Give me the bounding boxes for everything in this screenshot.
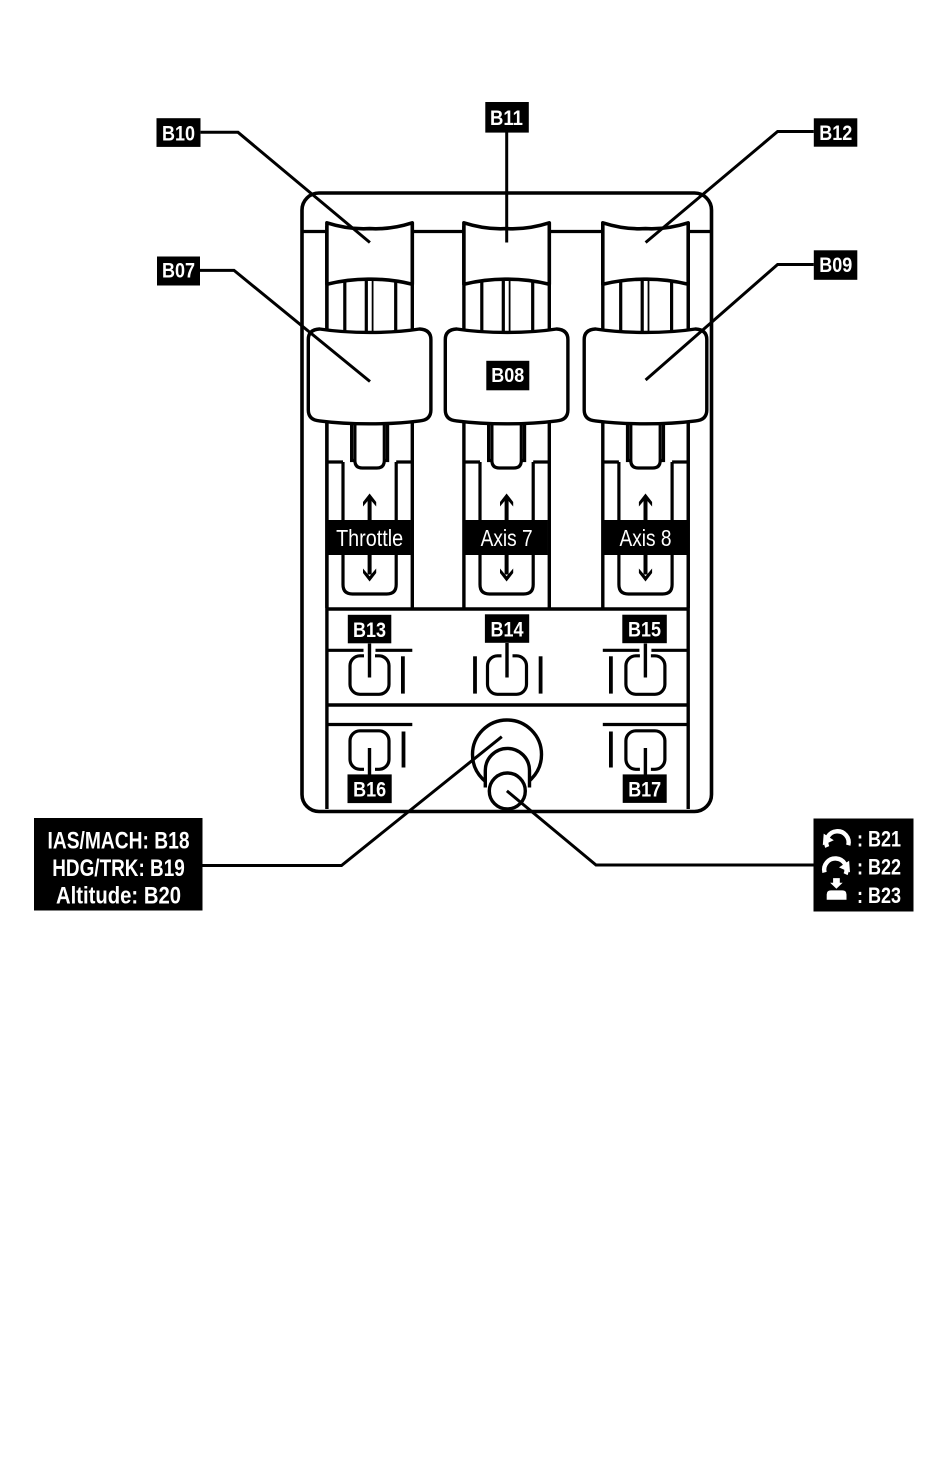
- svg-text:B14: B14: [491, 617, 524, 641]
- svg-text:B11: B11: [490, 106, 523, 130]
- svg-text:B16: B16: [353, 778, 386, 802]
- svg-text:B12: B12: [819, 121, 852, 145]
- svg-text:B07: B07: [162, 259, 195, 283]
- svg-text:B13: B13: [353, 618, 386, 642]
- svg-text:Altitude: B20: Altitude: B20: [56, 882, 181, 909]
- svg-text:B08: B08: [491, 365, 524, 387]
- svg-text:B15: B15: [628, 618, 661, 642]
- svg-text:B09: B09: [819, 253, 852, 277]
- svg-text:: B21: : B21: [857, 826, 901, 851]
- svg-text:HDG/TRK: B19: HDG/TRK: B19: [52, 855, 185, 882]
- svg-text:Throttle: Throttle: [336, 525, 403, 551]
- svg-text:: B23: : B23: [857, 883, 901, 908]
- svg-text:: B22: : B22: [857, 855, 901, 880]
- svg-text:IAS/MACH: B18: IAS/MACH: B18: [48, 828, 190, 855]
- svg-text:Axis 7: Axis 7: [481, 525, 533, 551]
- svg-text:Axis 8: Axis 8: [620, 525, 672, 551]
- svg-text:B17: B17: [628, 778, 661, 802]
- svg-text:B10: B10: [162, 121, 195, 145]
